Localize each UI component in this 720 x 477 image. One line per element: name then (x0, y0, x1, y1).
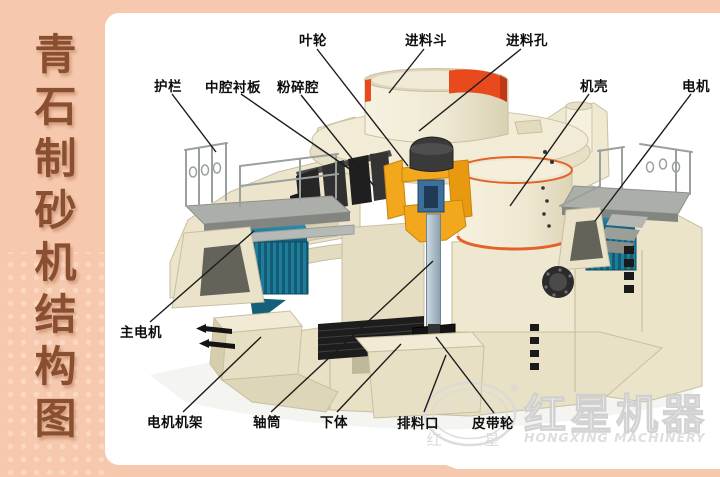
watermark-logo: ☆ ☆ ☆ ® 红 星 红星机器 HONGXING MACHINERY (425, 382, 708, 449)
label-discharge-port: 排料口 (397, 412, 439, 432)
page: { "page": {"bg": "#f6c9ae", "panel_bg": … (0, 0, 720, 477)
feed-hopper (365, 69, 509, 144)
registered-mark: ® (509, 382, 520, 395)
label-main-motor: 主电机 (120, 321, 162, 341)
seal-char-left: 红 (426, 431, 441, 449)
label-cavity-liner: 中腔衬板 (205, 76, 261, 96)
seal-char-right: 星 (484, 431, 499, 449)
sand-maker-structure-diagram: ☆ ☆ ☆ ® 红 星 红星机器 HONGXING MACHINERY (0, 0, 720, 477)
label-impeller: 叶轮 (299, 29, 327, 49)
leader-hulan (172, 94, 216, 152)
label-motor: 电机 (682, 75, 710, 95)
brand-name-en: HONGXING MACHINERY (524, 430, 707, 445)
star-icon: ☆ (437, 392, 459, 420)
label-guardrail: 护栏 (154, 75, 182, 95)
label-feed-hopper: 进料斗 (405, 29, 447, 49)
label-feed-hole: 进料孔 (506, 29, 548, 49)
label-lower-body: 下体 (320, 411, 348, 431)
label-machine-shell: 机壳 (580, 75, 608, 95)
label-shaft-tube: 轴筒 (253, 411, 281, 431)
label-crushing-cavity: 粉碎腔 (277, 76, 319, 96)
label-motor-frame: 电机机架 (147, 411, 203, 431)
label-belt-pulley: 皮带轮 (472, 412, 514, 432)
